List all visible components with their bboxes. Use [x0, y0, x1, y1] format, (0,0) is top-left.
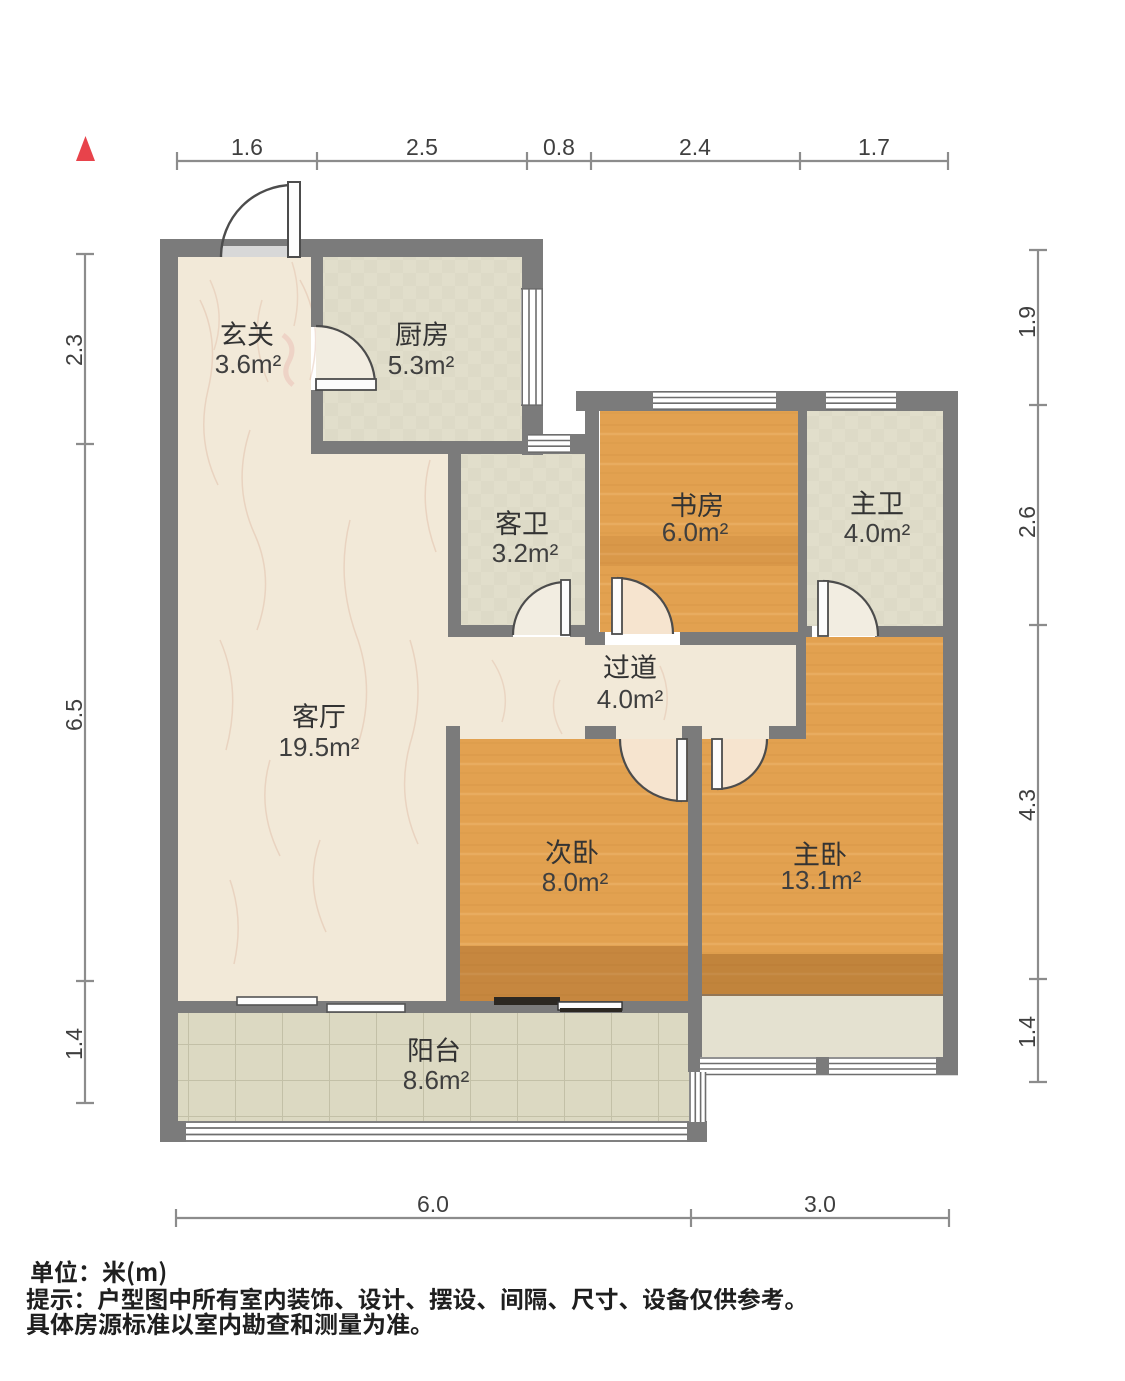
- svg-text:8.6m²: 8.6m²: [403, 1065, 470, 1095]
- svg-text:4.0m²: 4.0m²: [597, 684, 664, 714]
- svg-text:0.8: 0.8: [543, 134, 575, 160]
- svg-text:1.4: 1.4: [61, 1028, 87, 1060]
- svg-text:13.1m²: 13.1m²: [781, 865, 862, 895]
- svg-text:1.9: 1.9: [1014, 306, 1040, 338]
- svg-text:1.7: 1.7: [858, 134, 890, 160]
- svg-text:8.0m²: 8.0m²: [542, 867, 609, 897]
- svg-text:6.0: 6.0: [417, 1191, 449, 1217]
- svg-text:2.6: 2.6: [1014, 506, 1040, 538]
- svg-text:2.3: 2.3: [61, 334, 87, 366]
- svg-text:2.5: 2.5: [406, 134, 438, 160]
- svg-text:3.6m²: 3.6m²: [215, 349, 282, 379]
- svg-text:1.4: 1.4: [1014, 1016, 1040, 1048]
- svg-text:4.3: 4.3: [1014, 789, 1040, 821]
- svg-text:2.4: 2.4: [679, 134, 711, 160]
- svg-text:3.0: 3.0: [804, 1191, 836, 1217]
- svg-text:6.5: 6.5: [61, 699, 87, 731]
- svg-text:3.2m²: 3.2m²: [492, 538, 559, 568]
- svg-text:5.3m²: 5.3m²: [388, 350, 455, 380]
- svg-text:4.0m²: 4.0m²: [844, 518, 911, 548]
- svg-text:6.0m²: 6.0m²: [662, 517, 729, 547]
- svg-text:19.5m²: 19.5m²: [279, 732, 360, 762]
- svg-text:1.6: 1.6: [231, 134, 263, 160]
